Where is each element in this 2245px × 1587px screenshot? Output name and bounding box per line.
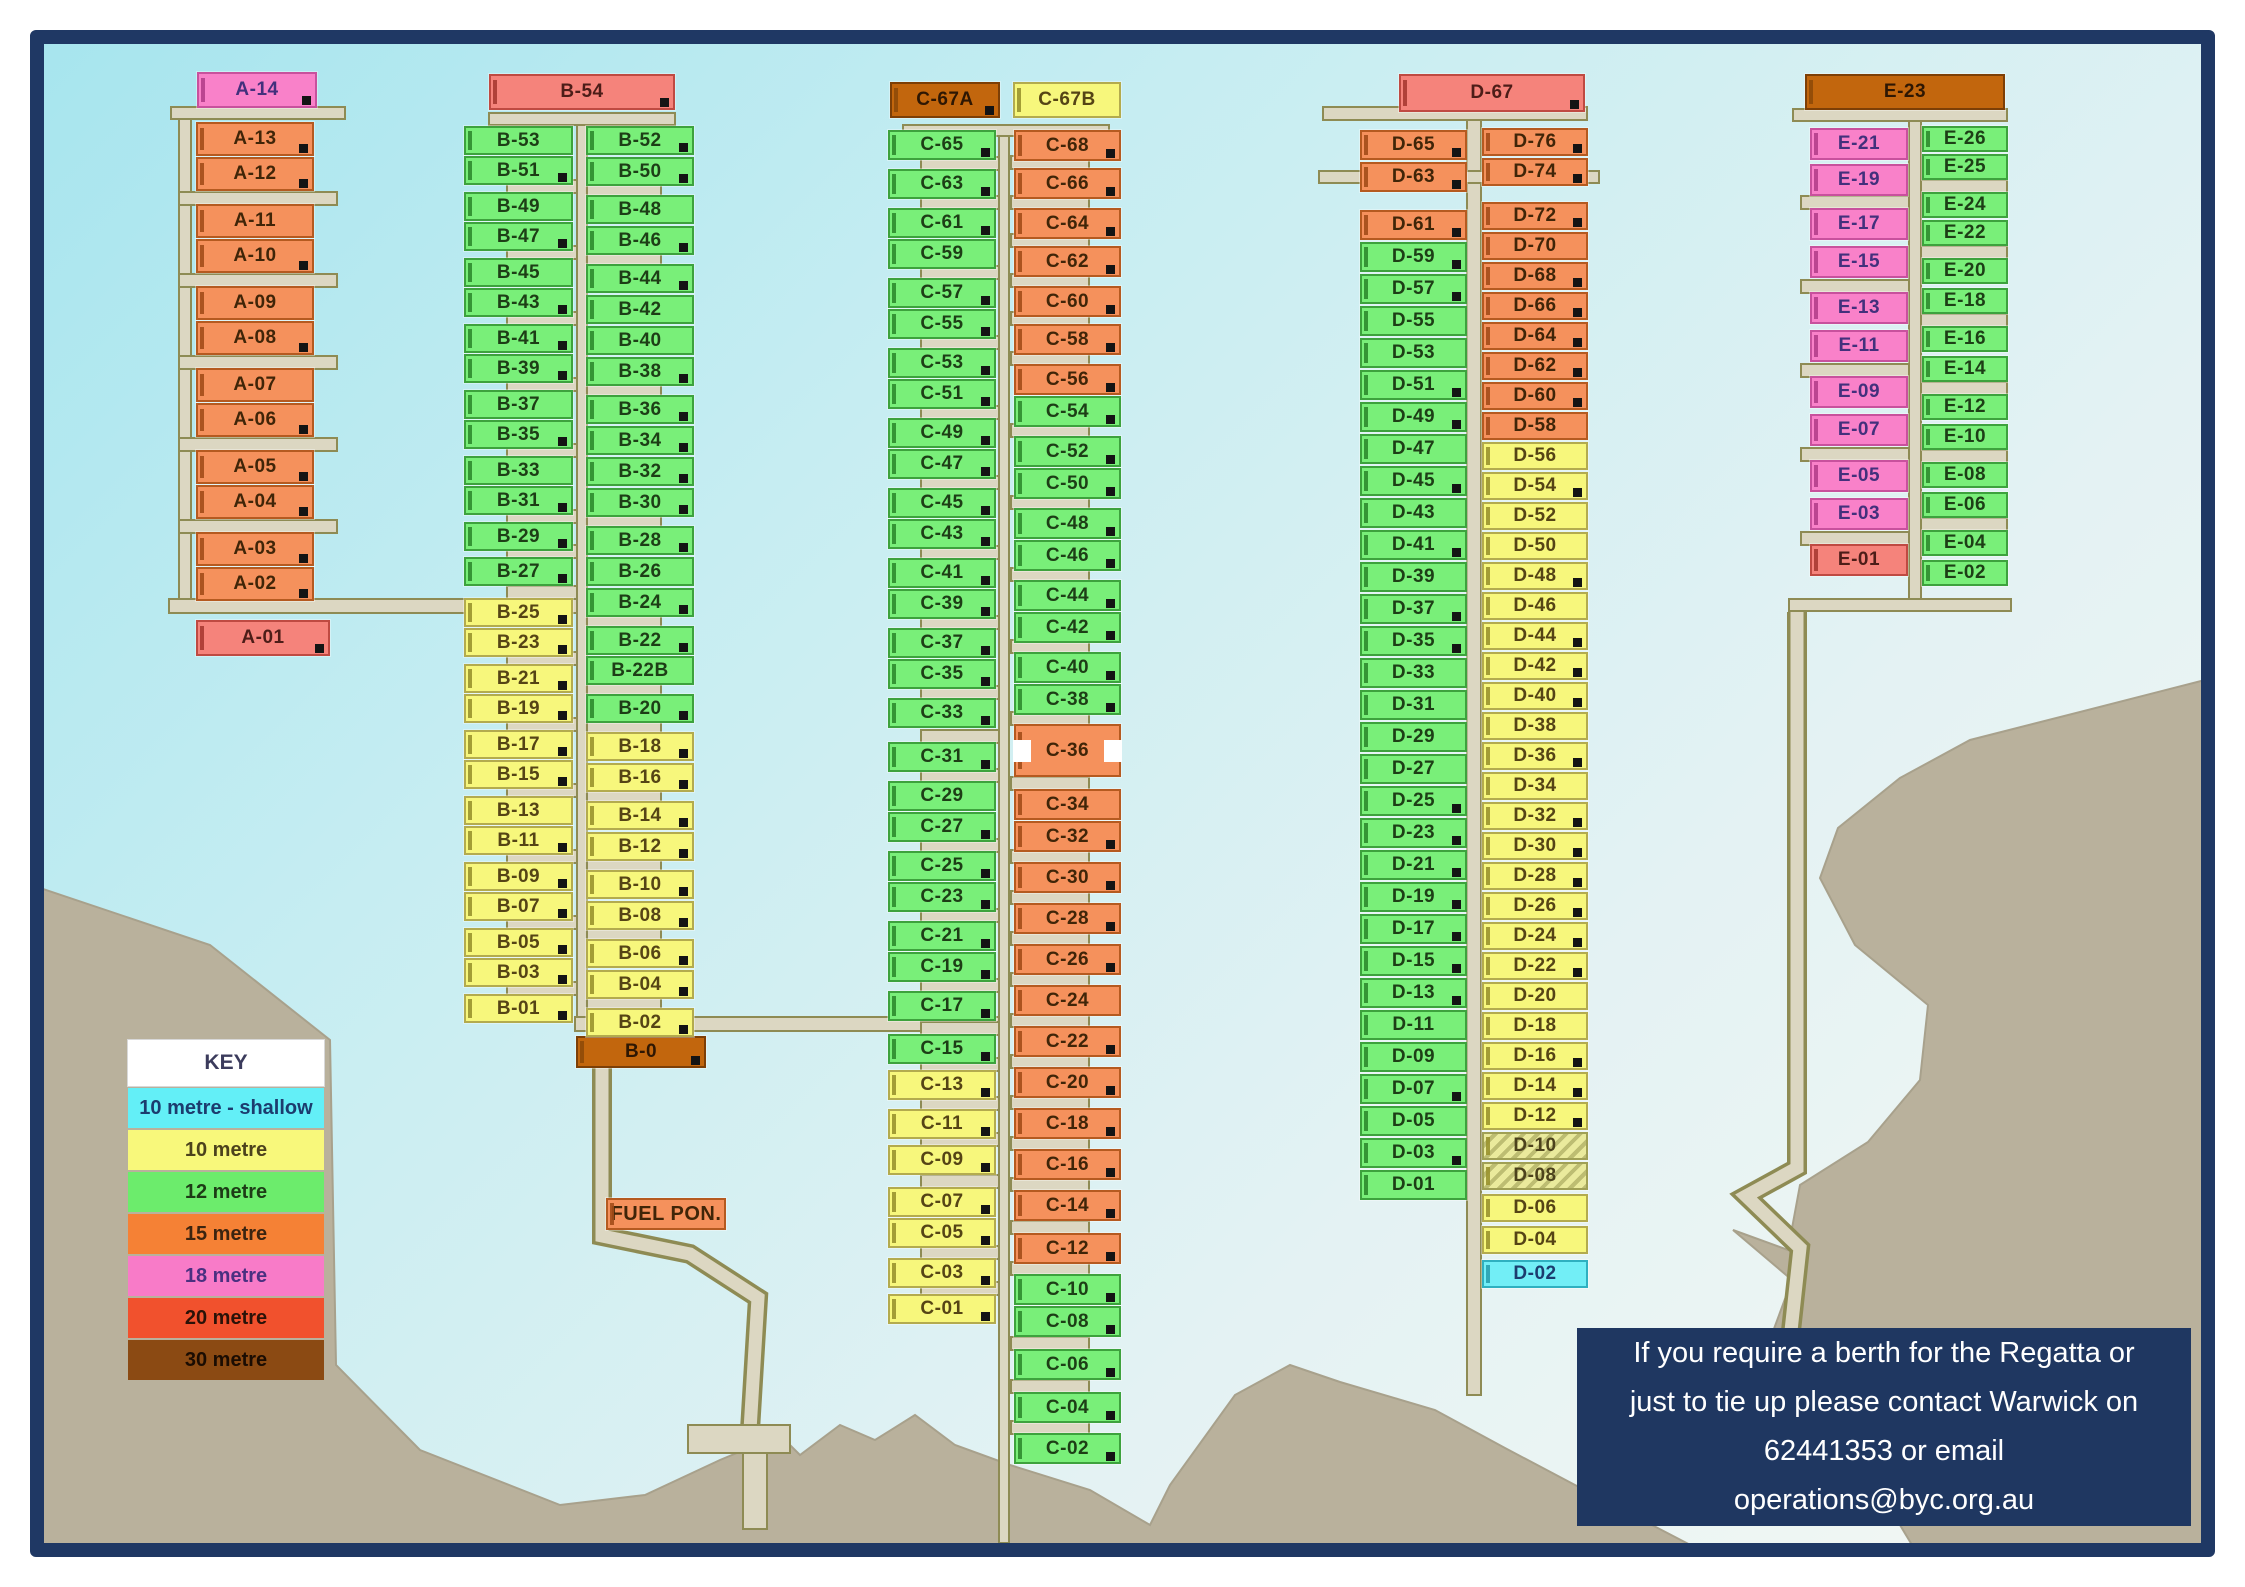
berth-label: D-44 [1513,625,1556,647]
berth-label: B-45 [497,262,540,284]
occupied-marker [981,296,990,305]
berth: C-61 [888,208,996,238]
berth: D-38 [1482,712,1588,740]
berth: D-47 [1360,434,1467,464]
berth: B-07 [464,892,573,921]
berth-label: D-65 [1392,134,1435,156]
berth: D-19 [1360,882,1467,912]
berth: D-58 [1482,412,1588,440]
berth: D-65 [1360,130,1467,160]
occupied-marker [1106,963,1115,972]
berth-label: C-25 [920,855,963,877]
berth-label: C-66 [1046,173,1089,195]
berth-label: B-15 [497,764,540,786]
berth: B-14 [586,801,694,830]
walkway-stub [920,838,1000,853]
walkway-stub [1010,1379,1090,1394]
berth-label: C-51 [920,383,963,405]
berth-label: C-44 [1046,585,1089,607]
berth-label: C-57 [920,282,963,304]
berth: C-35 [888,659,996,689]
berth: E-23 [1805,74,2005,110]
berth: C-11 [888,1109,996,1139]
berth-label: C-67A [916,89,973,111]
berth-label: B-37 [497,394,540,416]
walkway [687,1424,791,1454]
berth: D-27 [1360,754,1467,784]
berth-label: D-54 [1513,475,1556,497]
berth-label: B-27 [497,561,540,583]
berth: C-09 [888,1145,996,1175]
berth-label: B-40 [618,330,661,352]
occupied-marker [315,644,324,653]
walkway-stub [1800,195,1910,210]
berth: C-45 [888,488,996,518]
berth: D-36 [1482,742,1588,770]
berth-label: D-05 [1392,1110,1435,1132]
occupied-marker [1573,144,1582,153]
berth: C-06 [1014,1349,1121,1380]
berth: A-06 [196,403,314,437]
walkway-stub [586,857,662,872]
berth: D-29 [1360,722,1467,752]
berth: D-61 [1360,210,1467,240]
berth-label: C-64 [1046,213,1089,235]
berth: C-51 [888,379,996,409]
berth: B-49 [464,192,573,221]
berth: C-29 [888,781,996,811]
berth-label: E-23 [1884,81,1926,103]
walkway-stub [1010,495,1090,510]
berth: C-20 [1014,1067,1121,1098]
berth: D-33 [1360,658,1467,688]
berth-label: C-42 [1046,617,1089,639]
berth-label: B-33 [497,460,540,482]
berth-label: C-26 [1046,949,1089,971]
berth-label: C-63 [920,173,963,195]
walkway-stub [506,981,578,996]
occupied-marker [1452,228,1461,237]
occupied-marker [679,643,688,652]
berth: D-20 [1482,982,1588,1010]
berth: D-28 [1482,862,1588,890]
occupied-marker [558,711,567,720]
berth-label: A-03 [233,538,276,560]
walkway-stub [920,195,1000,210]
occupied-marker [1106,1168,1115,1177]
berth: D-43 [1360,498,1467,528]
berth: B-40 [586,326,694,355]
berth-label: B-01 [497,998,540,1020]
occupied-marker [981,506,990,515]
berth: D-18 [1482,1012,1588,1040]
occupied-marker [679,174,688,183]
occupied-marker [558,503,567,512]
occupied-marker [981,939,990,948]
berth-label: A-07 [233,374,276,396]
berth-label: C-06 [1046,1354,1089,1376]
berth-label: B-43 [497,292,540,314]
berth: C-62 [1014,246,1121,277]
walkway-stub [920,1057,1000,1072]
berth-label: C-53 [920,352,963,374]
berth-label: C-24 [1046,990,1089,1012]
berth: D-10 [1482,1132,1588,1160]
walkway [488,112,676,126]
occupied-marker [1106,599,1115,608]
berth: D-44 [1482,622,1588,650]
occupied-marker [1452,260,1461,269]
berth: B-52 [586,126,694,155]
berth: A-12 [196,157,314,191]
walkway [1908,110,1922,602]
berth-label: E-12 [1944,396,1986,418]
berth-label: D-45 [1392,470,1435,492]
berth: E-05 [1810,460,1908,492]
occupied-marker [558,574,567,583]
walkway-stub [506,245,578,260]
berth: C-59 [888,239,996,269]
berth-label: D-58 [1513,415,1556,437]
occupied-marker [1106,187,1115,196]
berth-label: B-39 [497,358,540,380]
occupied-marker [981,1127,990,1136]
berth-label: E-26 [1944,128,1986,150]
occupied-marker [679,412,688,421]
berth-label: D-60 [1513,385,1556,407]
key-item: 10 metre [128,1130,324,1170]
berth-label: C-13 [920,1074,963,1096]
berth: C-43 [888,519,996,549]
berth: D-03 [1360,1138,1467,1168]
occupied-marker [981,677,990,686]
berth-label: D-41 [1392,534,1435,556]
berth-label: B-04 [618,974,661,996]
occupied-marker [1106,922,1115,931]
berth-label: C-46 [1046,545,1089,567]
berth: E-18 [1922,288,2008,314]
walkway [902,124,1110,137]
berth-label: D-29 [1392,726,1435,748]
walkway-stub [920,545,1000,560]
berth: E-02 [1922,560,2008,586]
berth-label: E-10 [1944,426,1986,448]
berth: E-08 [1922,462,2008,488]
occupied-marker [981,716,990,725]
berth: B-17 [464,730,573,759]
berth: B-21 [464,664,573,693]
walkway-stub [506,509,578,524]
berth: D-26 [1482,892,1588,920]
walkway-stub [920,1245,1000,1260]
occupied-marker [1106,1452,1115,1461]
berth: C-63 [888,169,996,199]
berth-label: C-15 [920,1038,963,1060]
berth-label: D-15 [1392,950,1435,972]
berth-label: D-37 [1392,598,1435,620]
fuel-pontoon: FUEL PON. [606,1198,726,1230]
berth: C-24 [1014,985,1121,1016]
berth: D-59 [1360,242,1467,272]
occupied-marker [558,239,567,248]
walkway-stub [1010,1177,1090,1192]
berth-label: D-23 [1392,822,1435,844]
berth: B-38 [586,357,694,386]
walkway-stub [1010,931,1090,946]
berth-label: C-19 [920,956,963,978]
occupied-marker [1106,1325,1115,1334]
berth-label: C-58 [1046,329,1089,351]
berth: B-23 [464,628,573,657]
berth: C-49 [888,418,996,448]
berth: B-06 [586,939,694,968]
berth-label: B-23 [497,632,540,654]
occupied-marker [981,1088,990,1097]
berth-label: B-05 [497,932,540,954]
berth-label: D-68 [1513,265,1556,287]
occupied-marker [1452,1092,1461,1101]
occupied-marker [558,305,567,314]
berth-label: A-08 [233,327,276,349]
walkway-stub [1800,531,1910,546]
walkway-stub [1010,1220,1090,1235]
walkway-stub [1010,233,1090,248]
berth: B-28 [586,526,694,555]
walkway-stub [1010,1013,1090,1028]
berth-label: C-31 [920,746,963,768]
walkway-stub [1010,1261,1090,1276]
walkway-stub [920,978,1000,993]
berth-label: D-21 [1392,854,1435,876]
berth-label: D-19 [1392,886,1435,908]
occupied-marker [299,261,308,270]
berth-label: B-30 [618,492,661,514]
berth-label: C-03 [920,1262,963,1284]
berth: C-64 [1014,208,1121,239]
berth-label: D-62 [1513,355,1556,377]
walkway-stub [506,179,578,194]
contact-note: If you require a berth for the Regatta o… [1577,1328,2191,1526]
berth-label: C-47 [920,453,963,475]
berth-label: D-27 [1392,758,1435,780]
walkway-stub [178,191,338,206]
walkway-stub [586,788,662,803]
occupied-marker [981,970,990,979]
berth-label: E-04 [1944,532,1986,554]
occupied-marker [558,681,567,690]
berth: C-19 [888,952,996,982]
berth-label: E-11 [1838,335,1879,357]
berth-label: C-40 [1046,657,1089,679]
berth: C-33 [888,698,996,728]
berth: C-36 [1014,724,1121,777]
berth: D-48 [1482,562,1588,590]
berth: D-46 [1482,592,1588,620]
berth: D-40 [1482,682,1588,710]
walkway-stub [1010,423,1090,438]
berth-label: A-09 [233,292,276,314]
berth: C-57 [888,278,996,308]
berth: B-45 [464,258,573,287]
berth-label: C-14 [1046,1195,1089,1217]
occupied-marker [679,143,688,152]
occupied-marker [558,945,567,954]
berth-label: B-53 [497,130,540,152]
walkway-stub [1800,363,1910,378]
berth-label: D-61 [1392,214,1435,236]
occupied-marker [1452,836,1461,845]
occupied-marker [981,366,990,375]
berth-label: E-19 [1838,169,1880,191]
occupied-marker [299,554,308,563]
occupied-marker [1573,338,1582,347]
berth: D-21 [1360,850,1467,880]
walkway [1792,108,2008,122]
berth: C-28 [1014,903,1121,934]
occupied-marker [1106,1086,1115,1095]
berth-label: A-12 [233,163,276,185]
berth-label: C-01 [920,1298,963,1320]
berth-label: B-54 [560,81,603,103]
berth-label: D-20 [1513,985,1556,1007]
berth: C-67A [890,82,1000,118]
map-layer: A-14A-01A-13A-12A-11A-10A-09A-08A-07A-06… [0,0,2245,1587]
walkway-stub [506,849,578,864]
berth-label: D-14 [1513,1075,1556,1097]
occupied-marker [1573,278,1582,287]
occupied-marker [1573,818,1582,827]
berth: B-01 [464,994,573,1023]
berth-label: D-07 [1392,1078,1435,1100]
walkway-stub [506,915,578,930]
berth: C-52 [1014,436,1121,467]
berth-label: A-01 [241,627,284,649]
berth: C-21 [888,921,996,951]
berth-label: C-52 [1046,441,1089,463]
walkway-stub [1920,449,2008,464]
berth-label: C-02 [1046,1438,1089,1460]
berth-label: C-54 [1046,401,1089,423]
occupied-marker [558,437,567,446]
occupied-marker [1573,848,1582,857]
berth-label: D-35 [1392,630,1435,652]
berth: B-19 [464,694,573,723]
walkway [576,124,588,1022]
walkway-stub [1010,639,1090,654]
berth-label: D-36 [1513,745,1556,767]
berth: B-13 [464,796,573,825]
berth-label: D-53 [1392,342,1435,364]
occupied-marker [1106,265,1115,274]
berth: B-20 [586,694,694,723]
berth-label: D-33 [1392,662,1435,684]
berth: E-04 [1922,530,2008,556]
occupied-marker [679,443,688,452]
berth-label: D-09 [1392,1046,1435,1068]
berth-label: B-38 [618,361,661,383]
key-item: 18 metre [128,1256,324,1296]
berth-label: D-34 [1513,775,1556,797]
contact-note-line: operations@byc.org.au [1734,1476,2034,1525]
berth: C-44 [1014,580,1121,611]
occupied-marker [1573,878,1582,887]
berth: B-24 [586,588,694,617]
berth: D-57 [1360,274,1467,304]
occupied-marker [1106,1293,1115,1302]
berth: E-03 [1810,498,1908,530]
berth-label: C-55 [920,313,963,335]
walkway-stub [506,783,578,798]
berth: B-32 [586,457,694,486]
walkway [742,1452,768,1530]
berth-label: B-13 [497,800,540,822]
occupied-marker [558,777,567,786]
berth-label: C-10 [1046,1279,1089,1301]
occupied-marker [558,341,567,350]
walkway-stub [178,355,338,370]
berth-label: D-39 [1392,566,1435,588]
berth: D-06 [1482,1194,1588,1222]
berth: E-19 [1810,164,1908,196]
berth-label: C-28 [1046,908,1089,930]
berth-label: B-46 [618,230,661,252]
occupied-marker [981,327,990,336]
contact-note-line: just to tie up please contact Warwick on [1630,1378,2138,1427]
occupied-marker [1106,631,1115,640]
key-item: 12 metre [128,1172,324,1212]
occupied-marker [558,645,567,654]
walkway-stub [1010,972,1090,987]
berth: C-48 [1014,508,1121,539]
walkway-stub [586,513,662,528]
walkway-stub [506,311,578,326]
occupied-marker [679,749,688,758]
berth-label: C-59 [920,243,963,265]
berth-label: C-11 [921,1113,963,1135]
berth-label: D-76 [1513,131,1556,153]
berth-label: C-29 [920,785,963,807]
occupied-marker [1452,868,1461,877]
berth: D-64 [1482,322,1588,350]
walkway-stub [1920,179,2008,194]
berth: C-16 [1014,1149,1121,1180]
berth: A-13 [196,122,314,156]
berth-label: C-48 [1046,513,1089,535]
occupied-marker [1452,484,1461,493]
occupied-marker [985,106,994,115]
notch-left [1013,740,1031,762]
berth: C-42 [1014,612,1121,643]
occupied-marker [981,607,990,616]
berth: C-58 [1014,324,1121,355]
occupied-marker [981,226,990,235]
occupied-marker [981,187,990,196]
berth: E-06 [1922,492,2008,518]
berth: C-50 [1014,468,1121,499]
occupied-marker [679,887,688,896]
occupied-marker [981,900,990,909]
berth: B-27 [464,557,573,586]
berth-label: C-45 [920,492,963,514]
berth: B-15 [464,760,573,789]
berth-label: D-25 [1392,790,1435,812]
berth-label: B-34 [618,430,661,452]
occupied-marker [1573,308,1582,317]
occupied-marker [299,507,308,516]
berth-label: B-31 [497,490,540,512]
berth-label: B-41 [497,328,540,350]
berth: D-31 [1360,690,1467,720]
